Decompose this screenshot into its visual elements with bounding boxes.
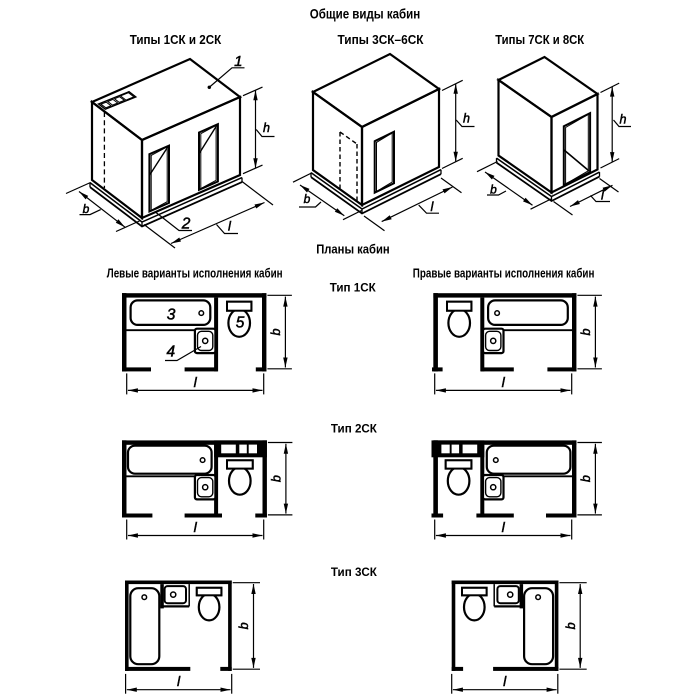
svg-text:h: h bbox=[463, 112, 470, 126]
svg-text:b: b bbox=[304, 192, 311, 206]
svg-text:b: b bbox=[579, 329, 593, 336]
svg-text:l: l bbox=[177, 673, 181, 689]
svg-text:4: 4 bbox=[166, 344, 175, 361]
svg-text:l: l bbox=[194, 519, 198, 535]
svg-text:l: l bbox=[431, 199, 435, 214]
svg-text:Типы 1СК и 2СК: Типы 1СК и 2СК bbox=[130, 32, 222, 47]
svg-text:l: l bbox=[503, 673, 507, 689]
svg-text:h: h bbox=[620, 113, 627, 127]
svg-text:l: l bbox=[228, 219, 232, 234]
svg-text:Тип 2СК: Тип 2СК bbox=[331, 422, 378, 436]
svg-text:h: h bbox=[263, 121, 270, 135]
svg-text:Общие виды кабин: Общие виды кабин bbox=[310, 6, 420, 22]
svg-text:Типы 7СК и 8СК: Типы 7СК и 8СК bbox=[495, 32, 584, 47]
svg-text:Тип 3СК: Тип 3СК bbox=[331, 565, 378, 579]
svg-text:b: b bbox=[269, 475, 283, 482]
svg-text:Типы 3СК–6СК: Типы 3СК–6СК bbox=[338, 32, 424, 47]
svg-text:5: 5 bbox=[236, 315, 245, 332]
svg-text:b: b bbox=[269, 329, 283, 336]
svg-text:Планы кабин: Планы кабин bbox=[316, 243, 390, 257]
svg-text:b: b bbox=[564, 622, 578, 629]
svg-text:b: b bbox=[237, 622, 251, 629]
svg-text:Левые варианты исполнения каби: Левые варианты исполнения кабин bbox=[107, 266, 283, 280]
svg-text:l: l bbox=[194, 374, 198, 390]
svg-text:b: b bbox=[83, 202, 90, 216]
svg-text:3: 3 bbox=[167, 307, 176, 324]
svg-text:Правые варианты исполнения каб: Правые варианты исполнения кабин bbox=[413, 266, 595, 280]
svg-text:b: b bbox=[579, 475, 593, 482]
svg-text:l: l bbox=[502, 519, 506, 535]
svg-text:Тип 1СК: Тип 1СК bbox=[330, 281, 377, 295]
svg-text:l: l bbox=[502, 374, 506, 390]
